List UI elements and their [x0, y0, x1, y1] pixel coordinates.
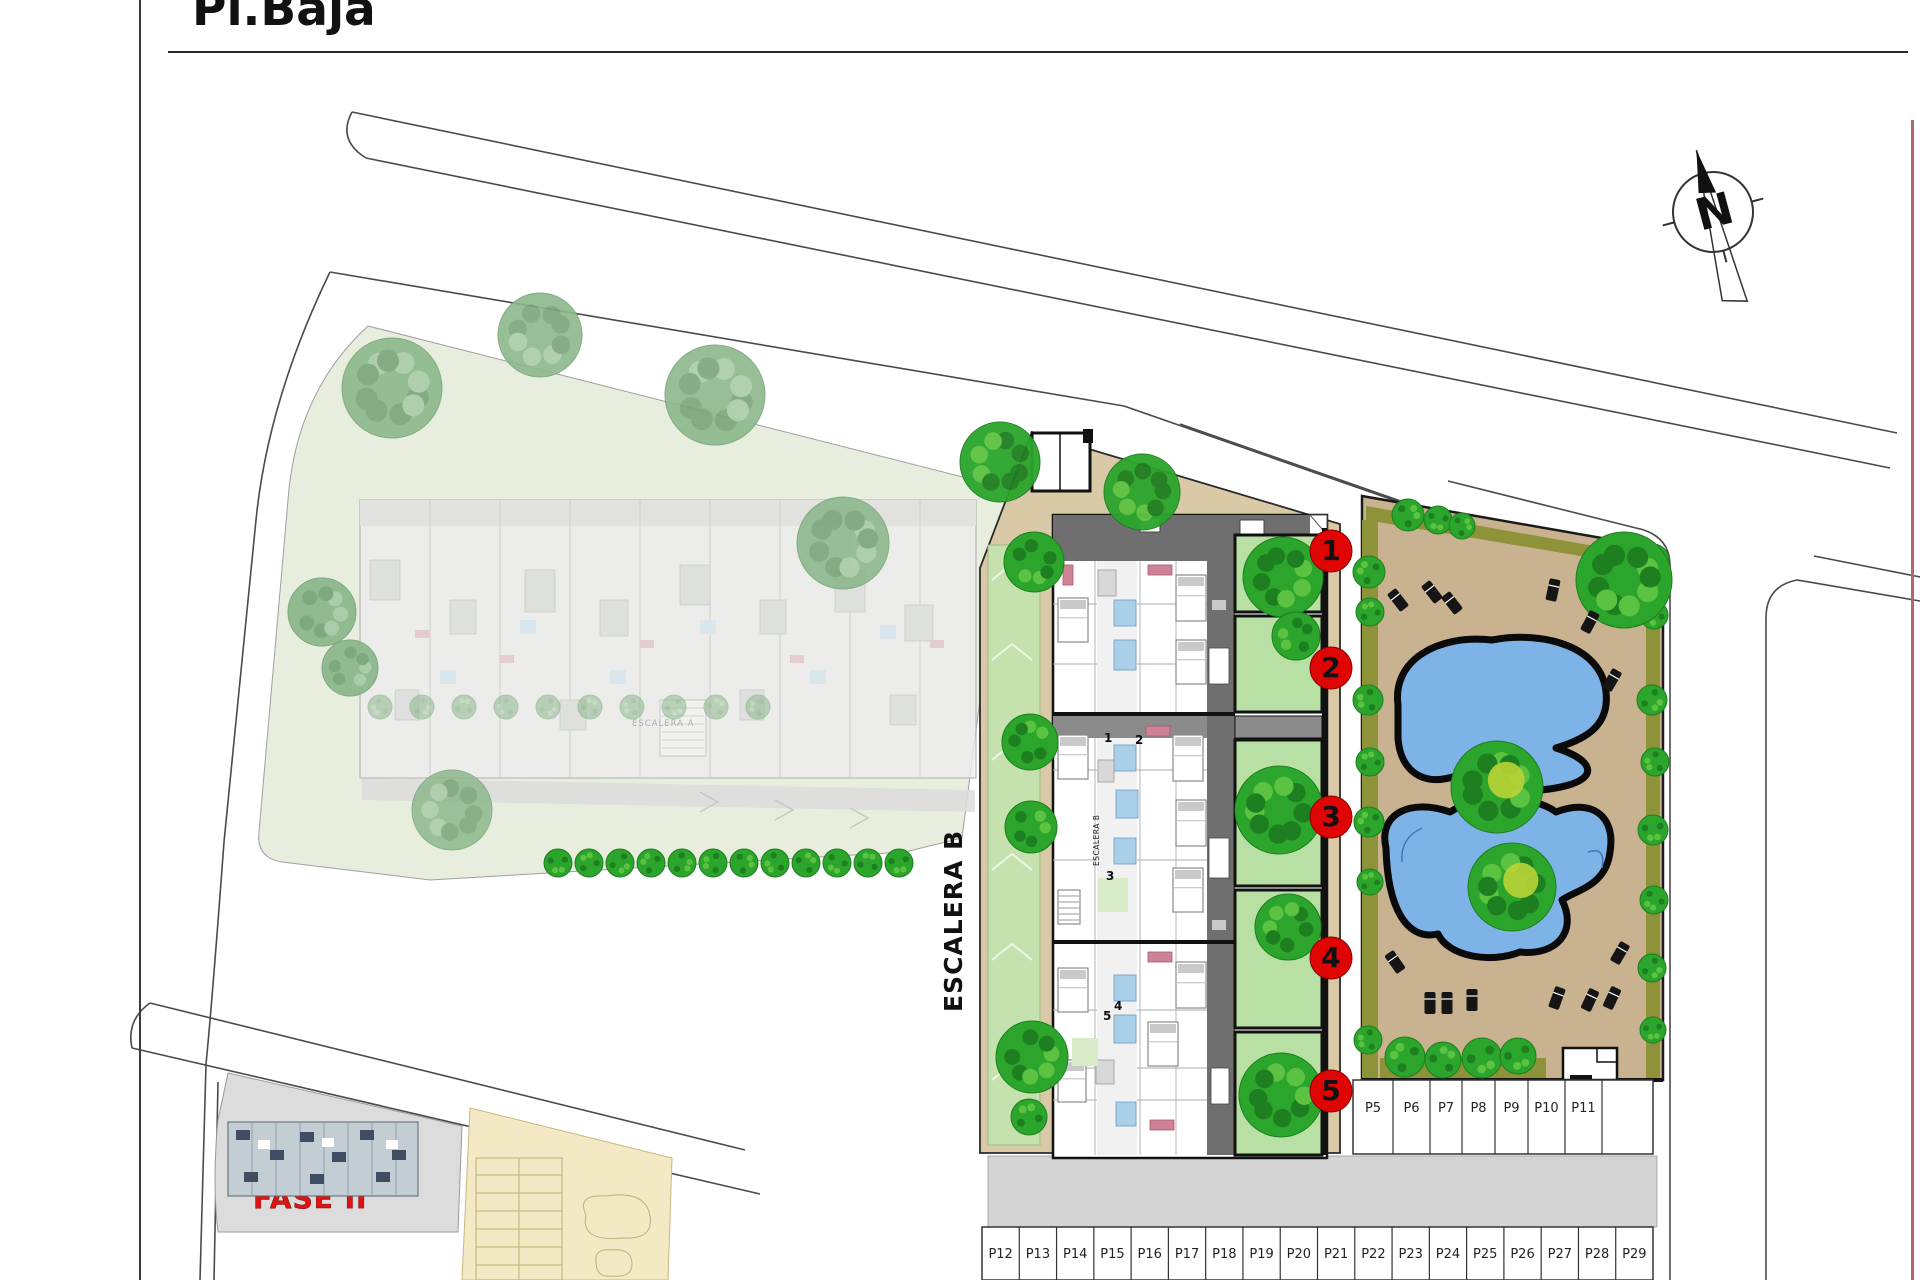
parking-stall-p22: P22	[1361, 1247, 1385, 1262]
bush-row	[792, 849, 820, 877]
bush-row	[854, 849, 882, 877]
tree	[288, 578, 356, 646]
parking-stall-p23: P23	[1398, 1247, 1422, 1262]
bush	[452, 695, 476, 719]
pool-equipment-room	[1563, 1048, 1617, 1080]
tree	[342, 338, 442, 438]
parking-stall-p19: P19	[1249, 1247, 1273, 1262]
entrance-structure	[1032, 429, 1093, 491]
parking-stall-p25: P25	[1473, 1247, 1497, 1262]
hedge-bush	[1356, 598, 1384, 626]
unit-number-label: 2	[1135, 733, 1143, 747]
parking-stall-p14: P14	[1063, 1247, 1087, 1262]
page-title: Pl.Baja	[192, 0, 376, 37]
pool-island-tree	[1468, 843, 1556, 931]
hedge-bush	[1392, 499, 1424, 531]
sun-lounger	[1442, 992, 1453, 1014]
bush	[494, 695, 518, 719]
tree	[1104, 454, 1180, 530]
bush	[704, 695, 728, 719]
apartment-marker-5: 5	[1310, 1070, 1352, 1112]
hedge-bush	[1638, 954, 1666, 982]
tree	[960, 422, 1040, 502]
hedge-bush	[1424, 506, 1452, 534]
hedge-bush	[1449, 513, 1475, 539]
building-label-large: ESCALERA B	[939, 830, 968, 1012]
apartment-marker-3: 3	[1310, 796, 1352, 838]
hedge-bush	[1354, 1026, 1382, 1054]
bush-row	[730, 849, 758, 877]
tree	[1002, 714, 1058, 770]
garden-palm	[1235, 766, 1323, 854]
tree	[412, 770, 492, 850]
tree	[322, 640, 378, 696]
apartment-marker-number: 3	[1321, 800, 1340, 833]
hedge-bush	[1353, 685, 1383, 715]
bush	[746, 695, 770, 719]
garden-palm	[1272, 612, 1320, 660]
parking-stall-p15: P15	[1100, 1247, 1124, 1262]
tree	[996, 1021, 1068, 1093]
hedge-bush	[1353, 556, 1385, 588]
tree	[1004, 532, 1064, 592]
bush-row	[544, 849, 572, 877]
boundary-red-line	[1911, 120, 1914, 1280]
hedge-bush	[1425, 1042, 1461, 1078]
tree	[1011, 1099, 1047, 1135]
compass-n-label: N	[1690, 183, 1739, 242]
compass: N	[1646, 137, 1788, 317]
tree	[665, 345, 765, 445]
site-plan-drawing: ESCALERA A12345ESCALERA BP5P6P7P8P9P10P1…	[0, 0, 1920, 1280]
parking-stall-p13: P13	[1026, 1247, 1050, 1262]
bush	[578, 695, 602, 719]
unit-number-label: 1	[1104, 731, 1112, 745]
parking-stall-p5: P5	[1365, 1101, 1381, 1116]
bush	[620, 695, 644, 719]
page-border-line	[139, 0, 141, 1280]
parking-stall-p12: P12	[988, 1247, 1012, 1262]
unit-number-label: 4	[1114, 999, 1122, 1013]
parking-stall-p7: P7	[1438, 1101, 1454, 1116]
tree	[498, 293, 582, 377]
unit-number-label: 3	[1106, 869, 1114, 883]
bush-row	[699, 849, 727, 877]
unit-number-label: 5	[1103, 1009, 1111, 1023]
pool-island-tree	[1451, 741, 1543, 833]
bush	[410, 695, 434, 719]
building-label-small: ESCALERA B	[1092, 815, 1101, 866]
parking-stall-p26: P26	[1510, 1247, 1534, 1262]
faded-building-label: ESCALERA A	[632, 719, 695, 729]
parking-stall-p27: P27	[1548, 1247, 1572, 1262]
sun-lounger	[1425, 992, 1436, 1014]
phase2-mini-building	[228, 1122, 418, 1196]
bush-row	[606, 849, 634, 877]
bush-row	[637, 849, 665, 877]
hedge-bush	[1462, 1038, 1502, 1078]
apartment-marker-number: 4	[1321, 941, 1340, 974]
hedge-bush	[1500, 1038, 1536, 1074]
hedge-bush	[1637, 685, 1667, 715]
apartment-marker-4: 4	[1310, 937, 1352, 979]
bush-row	[885, 849, 913, 877]
parking-stall-p17: P17	[1175, 1247, 1199, 1262]
phase1-mini-parcel	[462, 1108, 672, 1280]
parking-stall-p16: P16	[1138, 1247, 1162, 1262]
apartment-marker-number: 5	[1321, 1074, 1340, 1107]
apartment-marker-number: 2	[1321, 651, 1340, 684]
hedge-bush	[1385, 1037, 1425, 1077]
sun-lounger	[1467, 989, 1478, 1011]
parking-stall-p9: P9	[1503, 1101, 1519, 1116]
tree	[1005, 801, 1057, 853]
site-plan: ESCALERA A12345ESCALERA BP5P6P7P8P9P10P1…	[0, 0, 1920, 1280]
bush-row	[668, 849, 696, 877]
hedge-bush	[1357, 869, 1383, 895]
hedge-bush	[1640, 1017, 1666, 1043]
hedge-bush	[1641, 748, 1669, 776]
hedge-bush	[1640, 886, 1668, 914]
parking-stall-p20: P20	[1287, 1247, 1311, 1262]
parking-row-lower: P12P13P14P15P16P17P18P19P20P21P22P23P24P…	[982, 1227, 1653, 1280]
parking-stall-p18: P18	[1212, 1247, 1236, 1262]
parking-stall-p10: P10	[1534, 1101, 1558, 1116]
parking-stall-p6: P6	[1403, 1101, 1419, 1116]
parking-row-upper: P5P6P7P8P9P10P11	[1353, 1080, 1653, 1154]
bush	[536, 695, 560, 719]
hedge-bush	[1638, 815, 1668, 845]
bush-row	[575, 849, 603, 877]
parking-stall-p11: P11	[1571, 1101, 1595, 1116]
apartment-marker-2: 2	[1310, 647, 1352, 689]
parking-stall-p29: P29	[1622, 1247, 1646, 1262]
parking-stall-p8: P8	[1470, 1101, 1486, 1116]
hedge-bush	[1354, 807, 1384, 837]
bush-row	[823, 849, 851, 877]
bush	[662, 695, 686, 719]
bush-row	[761, 849, 789, 877]
parking-stall-p21: P21	[1324, 1247, 1348, 1262]
tree	[797, 497, 889, 589]
title-underline	[168, 51, 1908, 53]
apartment-marker-1: 1	[1310, 530, 1352, 572]
bush	[368, 695, 392, 719]
access-road	[988, 1156, 1657, 1227]
parking-stall-p24: P24	[1436, 1247, 1460, 1262]
hedge-bush	[1356, 748, 1384, 776]
parking-stall-p28: P28	[1585, 1247, 1609, 1262]
apartment-marker-number: 1	[1321, 534, 1340, 567]
